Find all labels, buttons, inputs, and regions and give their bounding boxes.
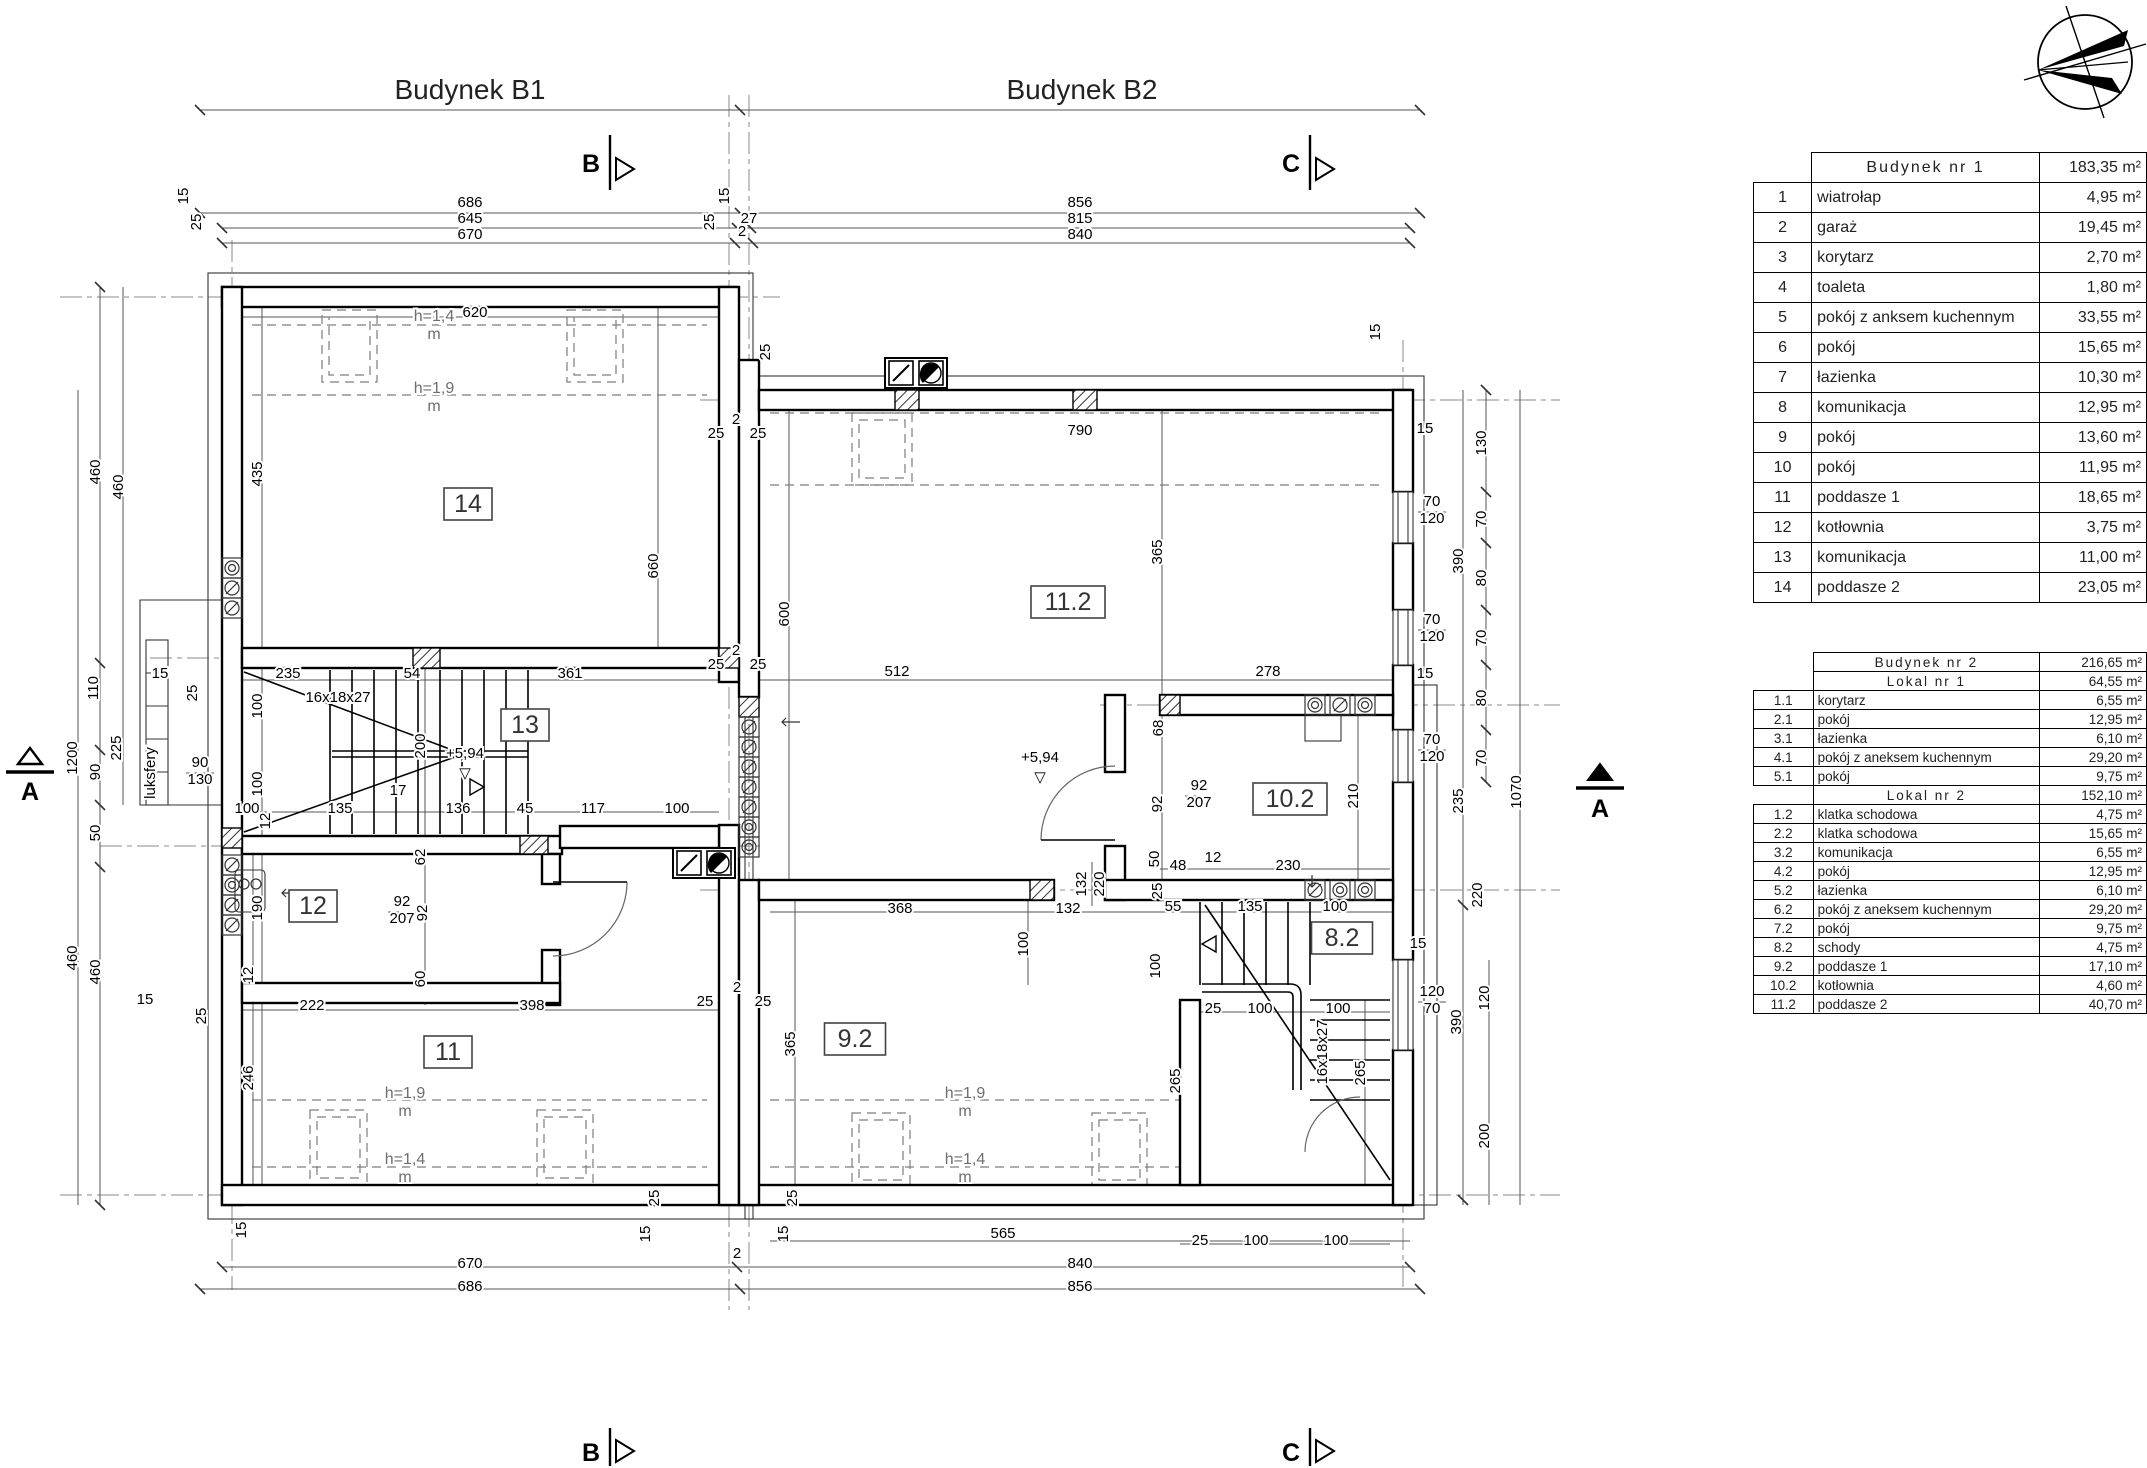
room-labels: 1413121111.210.29.28.2 xyxy=(289,488,1373,1068)
dimension-label: 130 xyxy=(1473,430,1490,455)
dimension-label: 132 xyxy=(1073,871,1090,896)
table-row: 4.2pokój12,95 m² xyxy=(1754,862,2147,881)
table-cell: 8 xyxy=(1754,393,1812,423)
table-row: 11.2poddasze 240,70 m² xyxy=(1754,995,2147,1014)
table-cell: 15,65 m² xyxy=(2040,824,2147,843)
dimension-label: 565 xyxy=(990,1225,1015,1242)
dimension-label: 100 xyxy=(1243,1232,1268,1249)
dimension-label: 460 xyxy=(64,945,81,970)
dimension-label: 246 xyxy=(240,1065,257,1090)
table-cell: 5.2 xyxy=(1754,881,1814,900)
table-cell: pokój xyxy=(1813,767,2040,786)
dimension-label: 92 xyxy=(1149,796,1166,813)
table-cell: pokój z anksem kuchennym xyxy=(1812,303,2040,333)
table-row: 13komunikacja11,00 m² xyxy=(1754,543,2147,573)
table-cell: wiatrołap xyxy=(1812,183,2040,213)
table-row: 5.1pokój9,75 m² xyxy=(1754,767,2147,786)
svg-text:12: 12 xyxy=(299,892,327,920)
dimension-label: 190 xyxy=(249,895,266,920)
table-cell: 2.1 xyxy=(1754,710,1814,729)
annotation-label: +5,94 xyxy=(446,745,484,762)
room-label: 11 xyxy=(424,1036,472,1068)
dimension-label: 100 xyxy=(1325,1000,1350,1017)
walls xyxy=(222,287,1413,1205)
table-cell: korytarz xyxy=(1813,691,2040,710)
table-cell: 152,10 m² xyxy=(2040,786,2147,805)
table-row: 1.1korytarz6,55 m² xyxy=(1754,691,2147,710)
dimension-label: 210 xyxy=(1345,783,1362,808)
dimension-label: 136 xyxy=(445,800,470,817)
dimension-label: 840 xyxy=(1067,226,1092,243)
table-cell xyxy=(1754,653,1814,672)
svg-text:13: 13 xyxy=(511,711,539,739)
dimension-label: 435 xyxy=(249,461,266,486)
dimension-label: 70 xyxy=(1424,493,1441,510)
table-row: 3.2komunikacja6,55 m² xyxy=(1754,843,2147,862)
dimension-label: 2 xyxy=(732,411,740,428)
table-cell: schody xyxy=(1813,938,2040,957)
dimension-label: 856 xyxy=(1067,194,1092,211)
table-cell: 18,65 m² xyxy=(2039,483,2146,513)
dimension-label: 135 xyxy=(327,800,352,817)
arrow-icon xyxy=(782,718,800,726)
dimension-label: 390 xyxy=(1450,548,1467,573)
table-cell: poddasze 2 xyxy=(1812,573,2040,603)
table-cell: 6,10 m² xyxy=(2040,881,2147,900)
table-row: 7.2pokój9,75 m² xyxy=(1754,919,2147,938)
table-cell: 33,55 m² xyxy=(2039,303,2146,333)
table-cell: 1 xyxy=(1754,183,1812,213)
dimension-label: 120 xyxy=(1419,628,1444,645)
table-cell: 4,75 m² xyxy=(2040,938,2147,957)
table-cell: 4.1 xyxy=(1754,748,1814,767)
table-cell: pokój xyxy=(1812,333,2040,363)
svg-text:11.2: 11.2 xyxy=(1045,588,1092,616)
section-marker-a-left xyxy=(6,748,54,772)
dimension-label: 670 xyxy=(457,226,482,243)
dimension-label: 25 xyxy=(193,1008,210,1025)
table-cell: Budynek nr 1 xyxy=(1812,153,2040,183)
table-cell: 3,75 m² xyxy=(2039,513,2146,543)
table-cell: 3 xyxy=(1754,243,1812,273)
dimension-label: 80 xyxy=(1473,690,1490,707)
table-row: 5.2łazienka6,10 m² xyxy=(1754,881,2147,900)
table-cell: 2,70 m² xyxy=(2039,243,2146,273)
table-cell: 2.2 xyxy=(1754,824,1814,843)
table-cell: 3.1 xyxy=(1754,729,1814,748)
section-marker-a-right xyxy=(1576,764,1624,788)
dimension-label: 220 xyxy=(1091,871,1108,896)
dimension-label: 660 xyxy=(645,553,662,578)
dimension-label: 12 xyxy=(1205,849,1222,866)
table-cell: komunikacja xyxy=(1812,393,2040,423)
dimension-label: 512 xyxy=(884,663,909,680)
door-arc xyxy=(553,766,1115,956)
table-cell: toaleta xyxy=(1812,273,2040,303)
table-cell: 11 xyxy=(1754,483,1812,513)
table-header-row: Budynek nr 1183,35 m² xyxy=(1754,153,2147,183)
dimension-label: 398 xyxy=(519,997,544,1014)
dimension-label: 686 xyxy=(457,1278,482,1295)
table-cell: komunikacja xyxy=(1812,543,2040,573)
table-budynek-2: Budynek nr 2216,65 m²Lokal nr 164,55 m²1… xyxy=(1753,652,2147,1014)
table-cell: 10,30 m² xyxy=(2039,363,2146,393)
table-header-row: Budynek nr 2216,65 m² xyxy=(1754,653,2147,672)
annotation-labels: Budynek B1Budynek B2BCBCAA16x18x2716x18x… xyxy=(21,74,1609,1467)
annotation-label: m xyxy=(958,1169,971,1186)
annotation-label: h=1,9 xyxy=(945,1085,986,1102)
dimension-label: 25 xyxy=(755,993,772,1010)
annotation-label: m xyxy=(398,1103,411,1120)
dimension-label: 110 xyxy=(85,676,102,700)
dimension-label: 117 xyxy=(581,800,605,817)
dimension-label: 207 xyxy=(389,910,414,927)
table-cell: Lokal nr 1 xyxy=(1813,672,2040,691)
dimension-label: 1070 xyxy=(1508,775,1525,808)
dimension-label: 92 xyxy=(394,893,411,910)
table-row: 11poddasze 118,65 m² xyxy=(1754,483,2147,513)
dimension-label: 15 xyxy=(637,1226,654,1243)
dimension-label: 12 xyxy=(240,967,257,984)
section-marker-b-top xyxy=(610,135,634,190)
table-row: 2garaż19,45 m² xyxy=(1754,213,2147,243)
dimension-label: 25 xyxy=(750,656,767,673)
annotation-label: h=1,9 xyxy=(385,1085,426,1102)
dimension-label: 620 xyxy=(462,304,487,321)
svg-text:11: 11 xyxy=(435,1038,461,1066)
table-cell: poddasze 1 xyxy=(1813,957,2040,976)
dimension-label: 2 xyxy=(732,642,740,659)
dimension-label: 70 xyxy=(1473,511,1490,528)
annotation-label: B xyxy=(582,150,600,178)
table-cell: pokój z aneksem kuchennym xyxy=(1813,748,2040,767)
dimension-label: 70 xyxy=(1424,611,1441,628)
dimension-label: 90 xyxy=(192,754,209,771)
dimension-label: 54 xyxy=(404,665,421,682)
table-row: 4toaleta1,80 m² xyxy=(1754,273,2147,303)
room-label: 10.2 xyxy=(1253,783,1327,815)
annotation-label: m xyxy=(958,1103,971,1120)
table-cell: garaż xyxy=(1812,213,2040,243)
table-row: 6.2pokój z aneksem kuchennym29,20 m² xyxy=(1754,900,2147,919)
annotation-label: C xyxy=(1282,150,1300,178)
dimension-label: 200 xyxy=(412,733,429,758)
dimension-label: 135 xyxy=(1237,898,1262,915)
table-row: 7łazienka10,30 m² xyxy=(1754,363,2147,393)
room-label: 13 xyxy=(501,709,549,741)
dimension-label: 235 xyxy=(275,665,300,682)
table-row: 10.2kotłownia4,60 m² xyxy=(1754,976,2147,995)
svg-text:10.2: 10.2 xyxy=(1266,785,1315,813)
dimension-label: 90 xyxy=(87,764,104,781)
dimension-label: 120 xyxy=(1476,985,1493,1010)
dimension-label: 15 xyxy=(1417,420,1434,437)
dimension-label: 100 xyxy=(234,800,259,817)
dimension-label: 840 xyxy=(1067,1255,1092,1272)
table-cell: 5 xyxy=(1754,303,1812,333)
dimension-label: 856 xyxy=(1067,1278,1092,1295)
dimension-label: 15 xyxy=(716,188,733,205)
table-cell: 12 xyxy=(1754,513,1812,543)
table-cell: 12,95 m² xyxy=(2040,862,2147,881)
dimension-label: 235 xyxy=(1450,788,1467,813)
dimension-label: 25 xyxy=(1192,1232,1209,1249)
dimension-label: 2 xyxy=(738,223,746,240)
annotation-label: ▽ xyxy=(459,765,471,782)
table-cell: 12,95 m² xyxy=(2040,710,2147,729)
table-header-row: Lokal nr 2152,10 m² xyxy=(1754,786,2147,805)
dimension-label: 120 xyxy=(1419,748,1444,765)
table-row: 9.2poddasze 117,10 m² xyxy=(1754,957,2147,976)
table-cell: pokój xyxy=(1812,423,2040,453)
annotation-label: ▽ xyxy=(1034,769,1046,786)
table-cell: 11,00 m² xyxy=(2039,543,2146,573)
table-cell: 9.2 xyxy=(1754,957,1814,976)
dimension-label: 600 xyxy=(776,601,793,626)
table-cell: 1.2 xyxy=(1754,805,1814,824)
annotation-label: C xyxy=(1282,1439,1300,1467)
table-cell: 8.2 xyxy=(1754,938,1814,957)
annotation-label: B xyxy=(582,1439,600,1467)
table-cell: 17,10 m² xyxy=(2040,957,2147,976)
dimension-label: 230 xyxy=(1275,857,1300,874)
dimension-label: 200 xyxy=(1476,1123,1493,1148)
dimension-label: 80 xyxy=(1473,570,1490,587)
annotation-label: m xyxy=(398,1169,411,1186)
dimension-label: 130 xyxy=(187,771,212,788)
floor-plan-sheet: 1413121111.210.29.28.2 68664567085681584… xyxy=(0,0,2147,1468)
dimension-label: 25 xyxy=(184,685,201,702)
table-row: 10pokój11,95 m² xyxy=(1754,453,2147,483)
table-row: 3korytarz2,70 m² xyxy=(1754,243,2147,273)
table-cell: 6,55 m² xyxy=(2040,843,2147,862)
dimension-label: 92 xyxy=(414,905,431,922)
dimension-label: 790 xyxy=(1067,422,1092,439)
table-cell: kotłownia xyxy=(1812,513,2040,543)
section-marker-c-bottom xyxy=(1310,1428,1334,1466)
dimension-label: 25 xyxy=(697,993,714,1010)
table-cell: pokój z aneksem kuchennym xyxy=(1813,900,2040,919)
table-cell: 5.1 xyxy=(1754,767,1814,786)
dimension-label: 365 xyxy=(782,1031,799,1056)
table-row: 2.1pokój12,95 m² xyxy=(1754,710,2147,729)
dimension-label: 25 xyxy=(188,214,205,231)
table-row: 5pokój z anksem kuchennym33,55 m² xyxy=(1754,303,2147,333)
table-row: 1wiatrołap4,95 m² xyxy=(1754,183,2147,213)
table-cell: 15,65 m² xyxy=(2039,333,2146,363)
dimension-label: 70 xyxy=(1424,1000,1441,1017)
table-cell xyxy=(1754,672,1814,691)
dimension-label: 120 xyxy=(1419,510,1444,527)
dimension-label: 55 xyxy=(1165,898,1182,915)
staircase-b1 xyxy=(244,670,528,834)
dimension-label: 100 xyxy=(249,771,266,796)
room-label: 14 xyxy=(444,488,492,520)
table-cell: 13 xyxy=(1754,543,1812,573)
dimension-label: 70 xyxy=(1424,731,1441,748)
table-cell xyxy=(1754,786,1814,805)
annotation-label: A xyxy=(21,778,39,806)
dimension-label: 70 xyxy=(1473,630,1490,647)
dimension-label: 15 xyxy=(175,188,192,205)
dimension-label: 100 xyxy=(664,800,689,817)
table-cell: klatka schodowa xyxy=(1813,824,2040,843)
table-cell: komunikacja xyxy=(1813,843,2040,862)
dimension-label: 365 xyxy=(1149,539,1166,564)
table-cell: 1,80 m² xyxy=(2039,273,2146,303)
annotation-label: h=1,4 xyxy=(945,1151,986,1168)
table-cell: 29,20 m² xyxy=(2040,900,2147,919)
room-label: 12 xyxy=(289,890,337,922)
dimension-label: 390 xyxy=(1448,1009,1465,1034)
table-cell: 4,95 m² xyxy=(2039,183,2146,213)
dimension-label: 2 xyxy=(733,979,741,996)
dimension-label: 100 xyxy=(1323,1232,1348,1249)
table-cell: 40,70 m² xyxy=(2040,995,2147,1014)
dimension-label: 25 xyxy=(750,425,767,442)
dimension-label: 225 xyxy=(108,735,125,760)
dimension-label: 25 xyxy=(784,1190,801,1207)
table-cell: 3.2 xyxy=(1754,843,1814,862)
dimension-label: 70 xyxy=(1473,750,1490,767)
dimension-label: 220 xyxy=(1469,882,1486,907)
table-cell: kotłownia xyxy=(1813,976,2040,995)
table-cell: 9,75 m² xyxy=(2040,919,2147,938)
annotation-label: m xyxy=(427,398,440,415)
dimension-label: 207 xyxy=(1186,794,1211,811)
dimension-label: 25 xyxy=(646,1190,663,1207)
table-cell: 7.2 xyxy=(1754,919,1814,938)
dimension-label: 62 xyxy=(412,849,429,866)
dimension-label: 222 xyxy=(299,997,324,1014)
table-row: 9pokój13,60 m² xyxy=(1754,423,2147,453)
dimension-label: 92 xyxy=(1191,777,1208,794)
dimension-label: 361 xyxy=(557,665,582,682)
dimension-label: 15 xyxy=(137,991,154,1008)
dimension-label: 460 xyxy=(110,474,127,499)
dimension-label: 278 xyxy=(1255,663,1280,680)
table-cell: 64,55 m² xyxy=(2040,672,2147,691)
dimension-label: 50 xyxy=(87,825,104,842)
compass-icon xyxy=(2024,6,2146,118)
table-cell: 6,10 m² xyxy=(2040,729,2147,748)
room-label: 8.2 xyxy=(1312,922,1373,954)
dimension-label: 815 xyxy=(1067,210,1092,227)
table-cell: poddasze 2 xyxy=(1813,995,2040,1014)
table-row: 12kotłownia3,75 m² xyxy=(1754,513,2147,543)
table-cell: klatka schodowa xyxy=(1813,805,2040,824)
section-marker-c-top xyxy=(1310,135,1334,190)
table-cell: 6.2 xyxy=(1754,900,1814,919)
dimension-label: 17 xyxy=(390,782,407,799)
dimension-label: 50 xyxy=(1146,851,1163,868)
table-cell: Lokal nr 2 xyxy=(1813,786,2040,805)
dimension-label: 15 xyxy=(1417,665,1434,682)
room-label: 11.2 xyxy=(1031,586,1105,618)
dimension-label: 1200 xyxy=(64,741,81,774)
dimension-label: 12 xyxy=(257,813,274,830)
dimension-label: 120 xyxy=(1419,983,1444,1000)
annotation-label: 16x18x27 xyxy=(305,689,370,706)
dimension-label: 15 xyxy=(1410,935,1427,952)
table-cell: łazienka xyxy=(1813,729,2040,748)
annotation-label: m xyxy=(427,326,440,343)
table-cell: 11.2 xyxy=(1754,995,1814,1014)
table-cell: 19,45 m² xyxy=(2039,213,2146,243)
table-cell: 4,60 m² xyxy=(2040,976,2147,995)
dimension-label: 100 xyxy=(1147,953,1164,978)
annotation-label: 16x18x27 xyxy=(1314,1019,1331,1084)
table-cell: 216,65 m² xyxy=(2040,653,2147,672)
annotation-label: h=1,9 xyxy=(414,380,455,397)
dimension-label: 100 xyxy=(1015,931,1032,956)
dimension-label: 100 xyxy=(249,693,266,718)
table-cell: Budynek nr 2 xyxy=(1813,653,2040,672)
table-cell: 4,75 m² xyxy=(2040,805,2147,824)
annotation-label: A xyxy=(1591,795,1609,823)
annotation-label: +5,94 xyxy=(1021,749,1059,766)
dimension-label: 100 xyxy=(1322,898,1347,915)
dimension-label: 460 xyxy=(87,459,104,484)
table-cell: łazienka xyxy=(1813,881,2040,900)
table-header-row: Lokal nr 164,55 m² xyxy=(1754,672,2147,691)
table-cell: 7 xyxy=(1754,363,1812,393)
table-cell: łazienka xyxy=(1812,363,2040,393)
dimension-label: 670 xyxy=(457,1255,482,1272)
table-cell: 2 xyxy=(1754,213,1812,243)
table-cell: poddasze 1 xyxy=(1812,483,2040,513)
table-cell: 14 xyxy=(1754,573,1812,603)
table-cell: pokój xyxy=(1812,453,2040,483)
table-row: 8komunikacja12,95 m² xyxy=(1754,393,2147,423)
dimension-label: 15 xyxy=(1367,324,1384,341)
table-cell: 6 xyxy=(1754,333,1812,363)
table-cell: 23,05 m² xyxy=(2039,573,2146,603)
table-cell: 4 xyxy=(1754,273,1812,303)
table-cell: 6,55 m² xyxy=(2040,691,2147,710)
table-cell: 1.1 xyxy=(1754,691,1814,710)
dimension-label: 25 xyxy=(757,344,774,361)
annotation-label: Budynek B1 xyxy=(395,74,546,105)
table-cell: 183,35 m² xyxy=(2039,153,2146,183)
dimension-label: 25 xyxy=(1205,1000,1222,1017)
table-cell: 12,95 m² xyxy=(2039,393,2146,423)
dimension-label: 265 xyxy=(1352,1060,1369,1085)
table-cell: 4.2 xyxy=(1754,862,1814,881)
table-cell: 29,20 m² xyxy=(2040,748,2147,767)
dimension-label: 48 xyxy=(1170,857,1187,874)
svg-text:14: 14 xyxy=(454,490,482,518)
section-marker-b-bottom xyxy=(610,1428,634,1466)
dimension-label: 2 xyxy=(733,1245,741,1262)
annotation-label: Budynek B2 xyxy=(1007,74,1158,105)
dimension-label: 45 xyxy=(517,800,534,817)
table-cell: pokój xyxy=(1813,919,2040,938)
dimension-label: 60 xyxy=(412,971,429,988)
table-row: 6pokój15,65 m² xyxy=(1754,333,2147,363)
table-cell: 9 xyxy=(1754,423,1812,453)
table-cell: 11,95 m² xyxy=(2039,453,2146,483)
table-row: 14poddasze 223,05 m² xyxy=(1754,573,2147,603)
dimension-label: 15 xyxy=(152,665,169,682)
svg-text:8.2: 8.2 xyxy=(1325,924,1360,952)
table-row: 8.2schody4,75 m² xyxy=(1754,938,2147,957)
table-cell: korytarz xyxy=(1812,243,2040,273)
dimension-label: 15 xyxy=(775,1226,792,1243)
dimension-label: 460 xyxy=(87,959,104,984)
dimension-label: 100 xyxy=(1247,1000,1272,1017)
dimension-label: 25 xyxy=(1149,883,1166,900)
